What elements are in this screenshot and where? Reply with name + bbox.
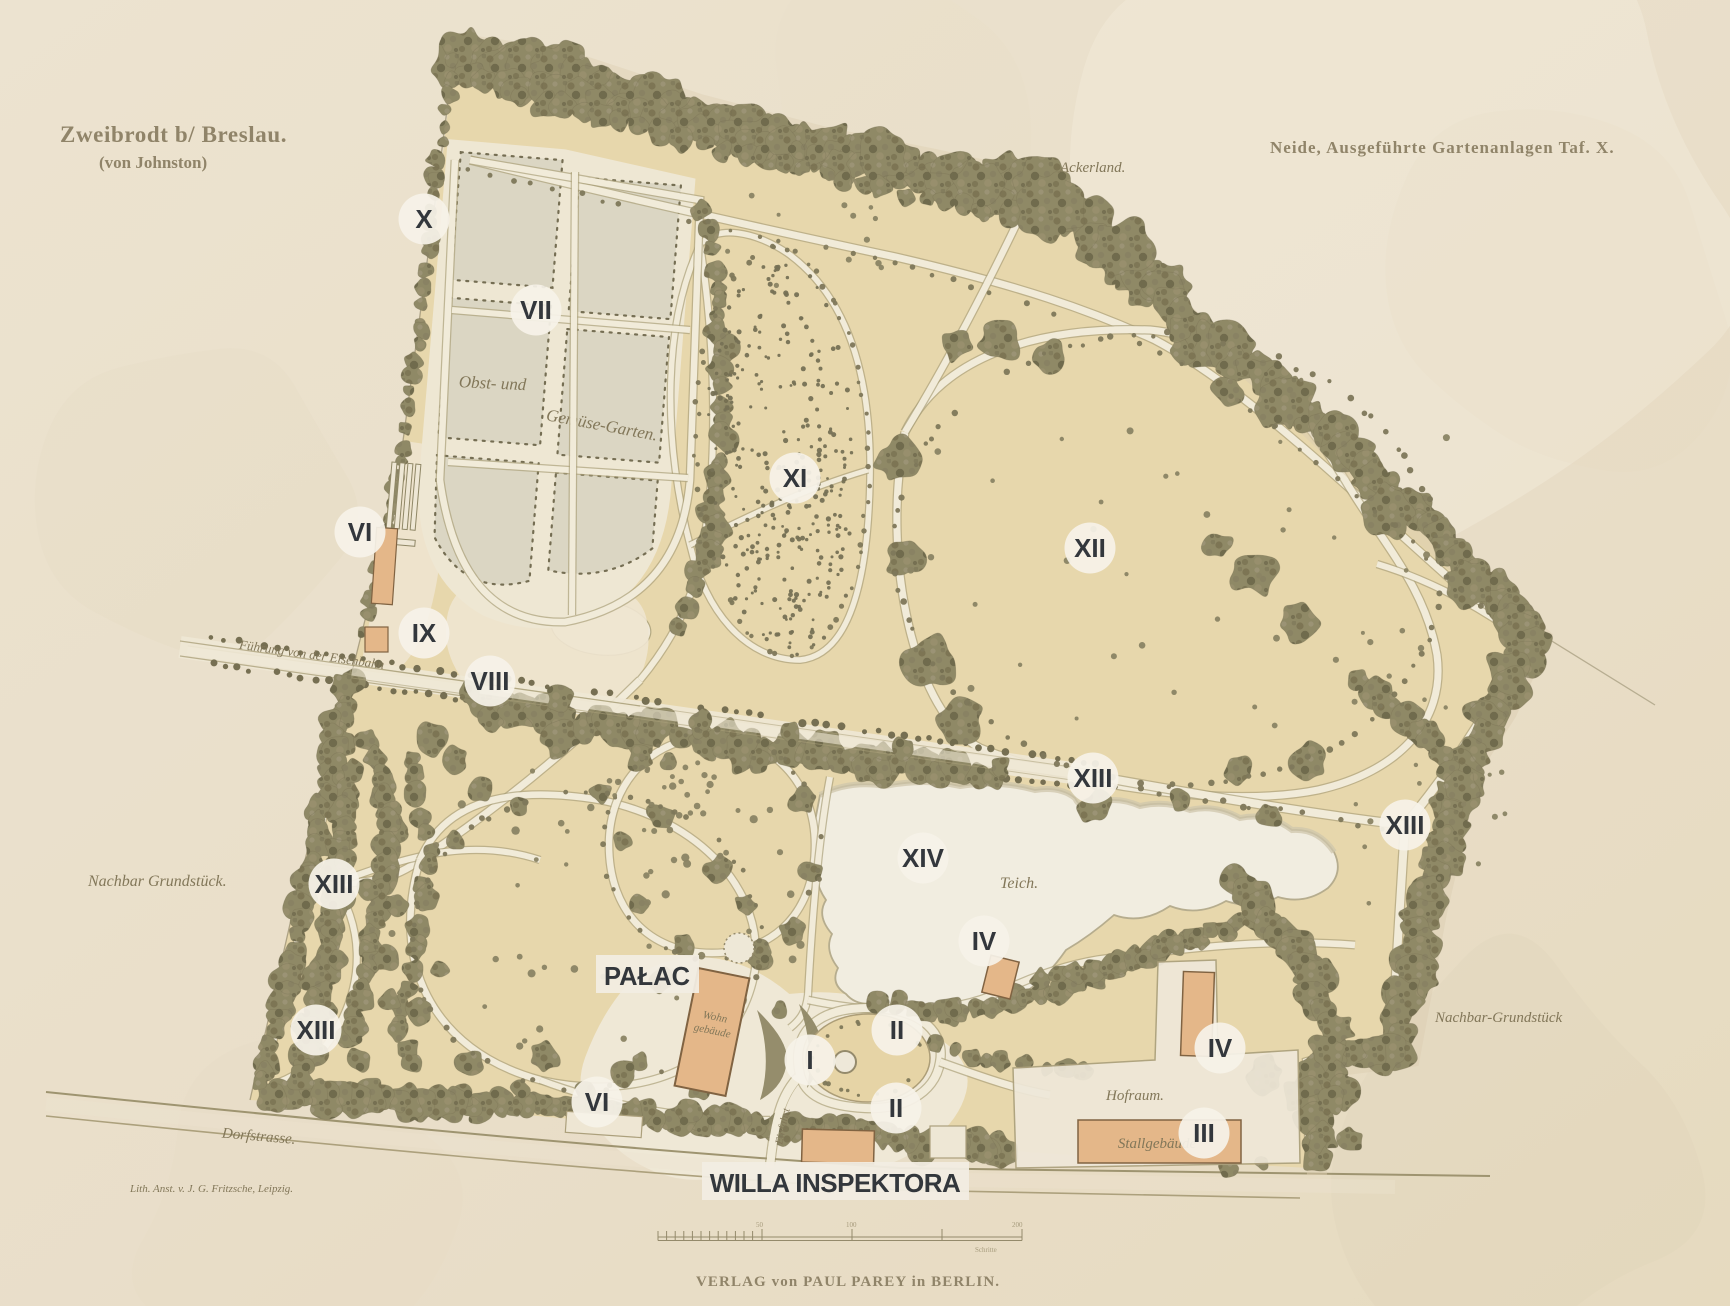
svg-text:X: X: [415, 204, 433, 234]
svg-text:IV: IV: [972, 926, 997, 956]
svg-text:VIII: VIII: [470, 666, 509, 696]
svg-text:XIV: XIV: [902, 843, 945, 873]
svg-text:XII: XII: [1074, 533, 1106, 563]
svg-text:II: II: [889, 1093, 903, 1123]
svg-text:VI: VI: [585, 1087, 610, 1117]
svg-text:XIII: XIII: [1385, 810, 1424, 840]
svg-text:II: II: [890, 1015, 904, 1045]
svg-text:VII: VII: [520, 295, 552, 325]
svg-text:IV: IV: [1208, 1033, 1233, 1063]
svg-text:XI: XI: [783, 463, 808, 493]
svg-text:XIII: XIII: [296, 1015, 335, 1045]
svg-text:PAŁAC: PAŁAC: [604, 961, 690, 991]
svg-text:IX: IX: [412, 618, 437, 648]
svg-text:III: III: [1193, 1118, 1215, 1148]
svg-text:XIII: XIII: [1073, 763, 1112, 793]
svg-text:WILLA INSPEKTORA: WILLA INSPEKTORA: [710, 1168, 961, 1198]
svg-text:XIII: XIII: [314, 869, 353, 899]
svg-text:I: I: [806, 1045, 813, 1075]
svg-text:VI: VI: [348, 517, 373, 547]
